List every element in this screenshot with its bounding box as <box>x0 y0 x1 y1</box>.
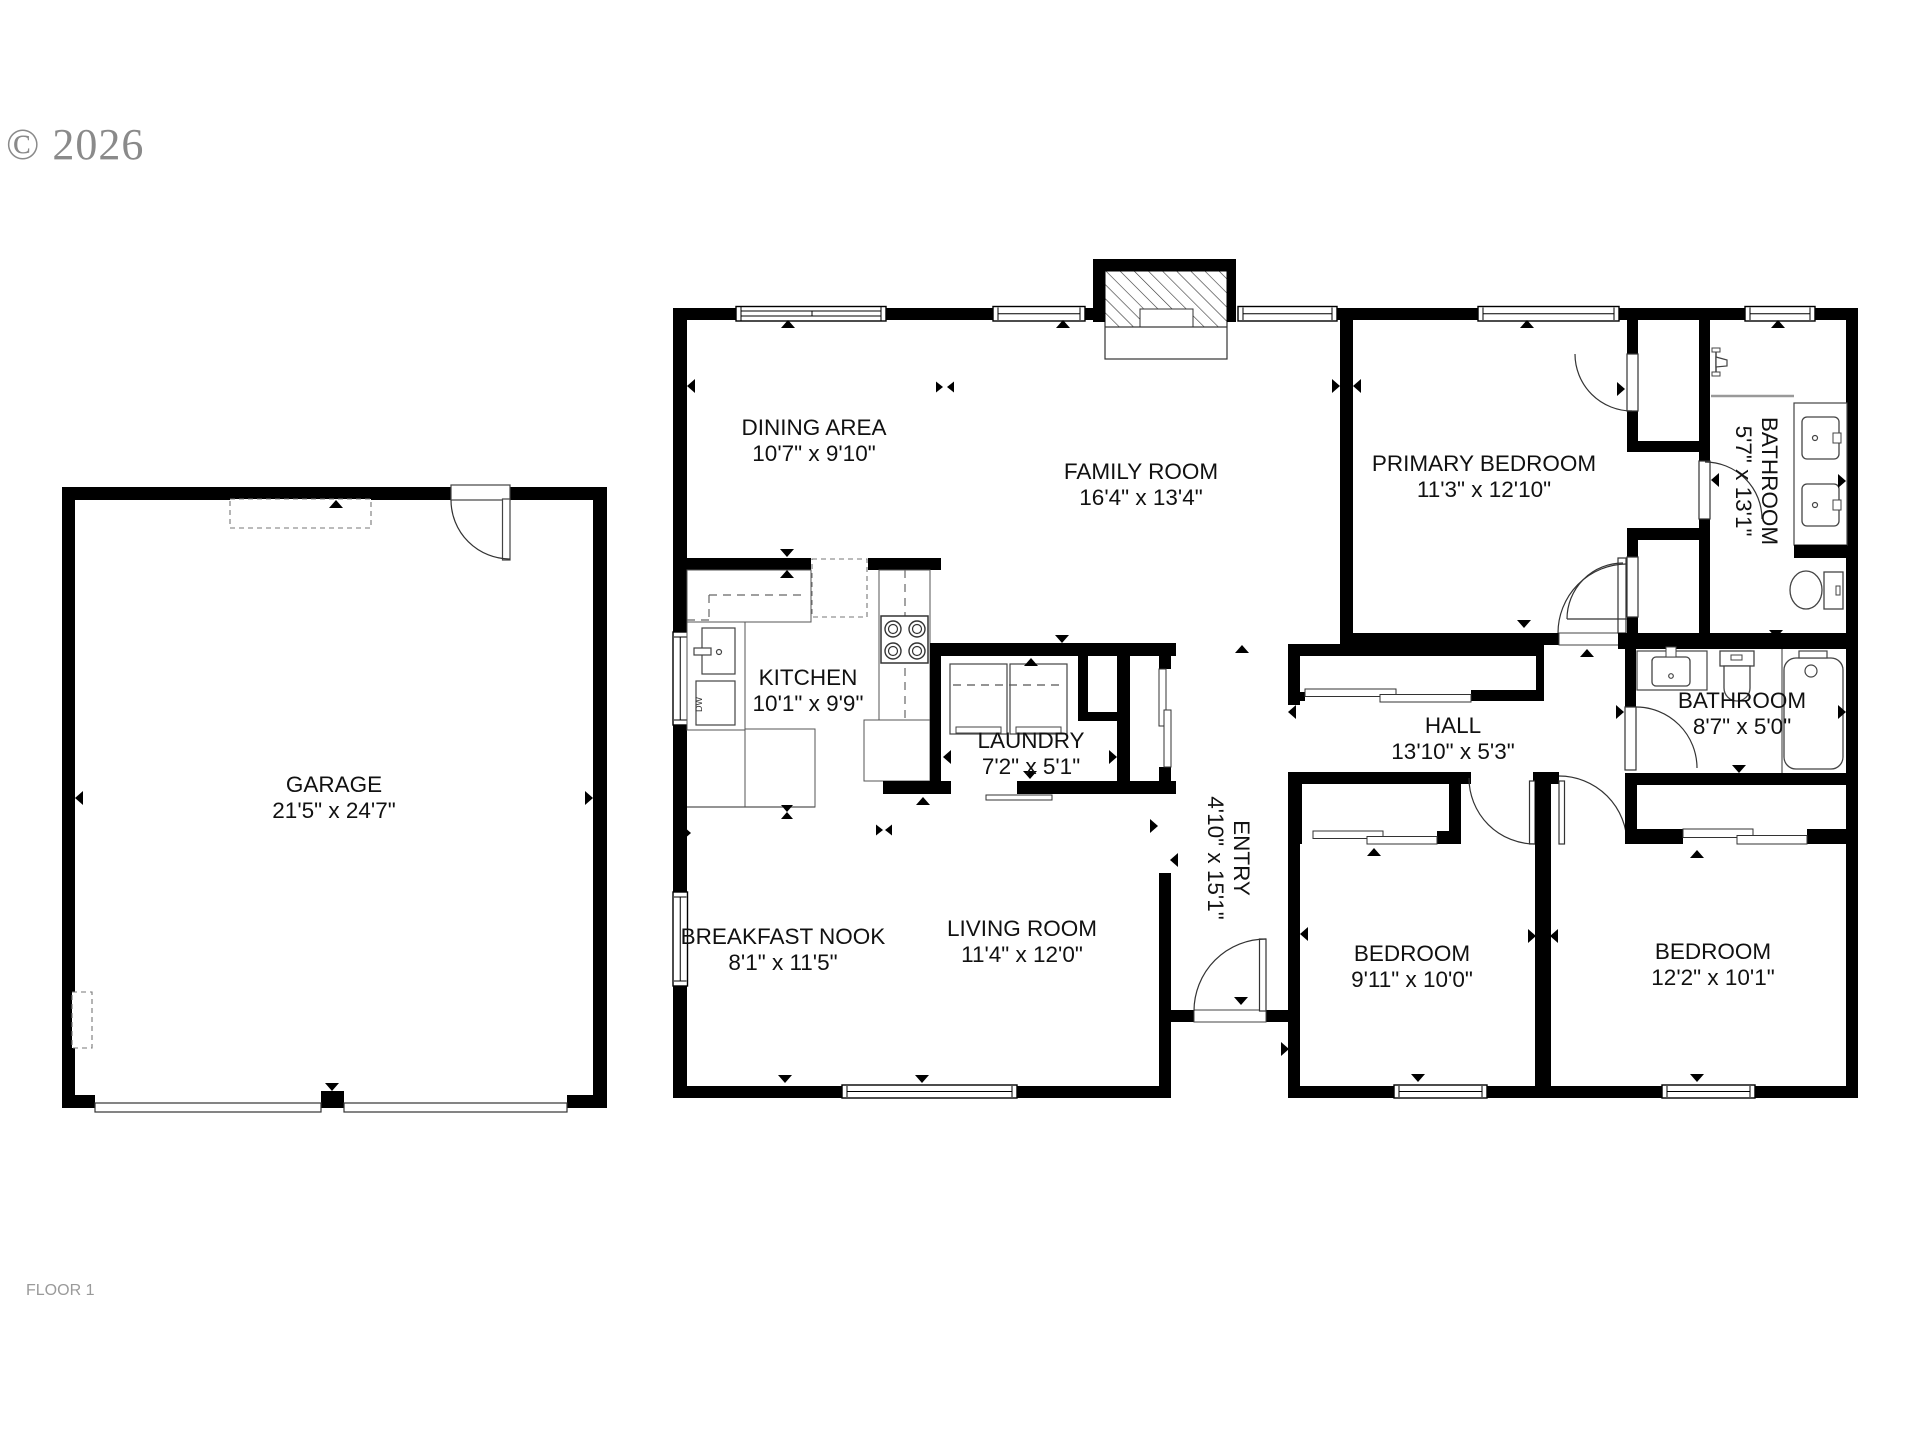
svg-text:9'11" x 10'0": 9'11" x 10'0" <box>1351 967 1473 992</box>
svg-text:BATHROOM: BATHROOM <box>1678 688 1806 713</box>
svg-text:© 2026: © 2026 <box>6 120 144 169</box>
svg-text:11'3" x 12'10": 11'3" x 12'10" <box>1417 477 1551 502</box>
svg-text:10'7" x 9'10": 10'7" x 9'10" <box>752 441 875 466</box>
svg-text:11'4" x 12'0": 11'4" x 12'0" <box>961 942 1083 967</box>
svg-text:KITCHEN: KITCHEN <box>759 665 858 690</box>
svg-text:LIVING ROOM: LIVING ROOM <box>947 916 1097 941</box>
svg-text:GARAGE: GARAGE <box>286 772 382 797</box>
svg-text:DW: DW <box>694 697 704 712</box>
svg-text:13'10" x 5'3": 13'10" x 5'3" <box>1391 739 1514 764</box>
svg-text:BEDROOM: BEDROOM <box>1354 941 1470 966</box>
svg-text:FAMILY ROOM: FAMILY ROOM <box>1064 459 1218 484</box>
svg-text:5'7" x 13'1": 5'7" x 13'1" <box>1731 426 1756 537</box>
svg-text:8'7" x 5'0": 8'7" x 5'0" <box>1693 714 1791 739</box>
svg-text:BEDROOM: BEDROOM <box>1655 939 1771 964</box>
svg-text:FLOOR 1: FLOOR 1 <box>26 1282 95 1299</box>
svg-text:16'4" x 13'4": 16'4" x 13'4" <box>1079 485 1202 510</box>
svg-text:ENTRY: ENTRY <box>1229 820 1254 896</box>
svg-text:12'2" x 10'1": 12'2" x 10'1" <box>1651 965 1774 990</box>
svg-text:8'1" x 11'5": 8'1" x 11'5" <box>728 950 837 975</box>
svg-text:DINING AREA: DINING AREA <box>741 415 886 440</box>
svg-text:PRIMARY BEDROOM: PRIMARY BEDROOM <box>1372 451 1596 476</box>
svg-text:LAUNDRY: LAUNDRY <box>977 728 1084 753</box>
svg-text:7'2" x 5'1": 7'2" x 5'1" <box>982 754 1080 779</box>
svg-text:BREAKFAST NOOK: BREAKFAST NOOK <box>681 924 886 949</box>
svg-text:21'5" x 24'7": 21'5" x 24'7" <box>272 798 395 823</box>
svg-text:BATHROOM: BATHROOM <box>1757 417 1782 545</box>
svg-text:4'10" x 15'1": 4'10" x 15'1" <box>1203 796 1228 919</box>
svg-text:10'1" x 9'9": 10'1" x 9'9" <box>753 691 864 716</box>
svg-text:HALL: HALL <box>1425 713 1481 738</box>
